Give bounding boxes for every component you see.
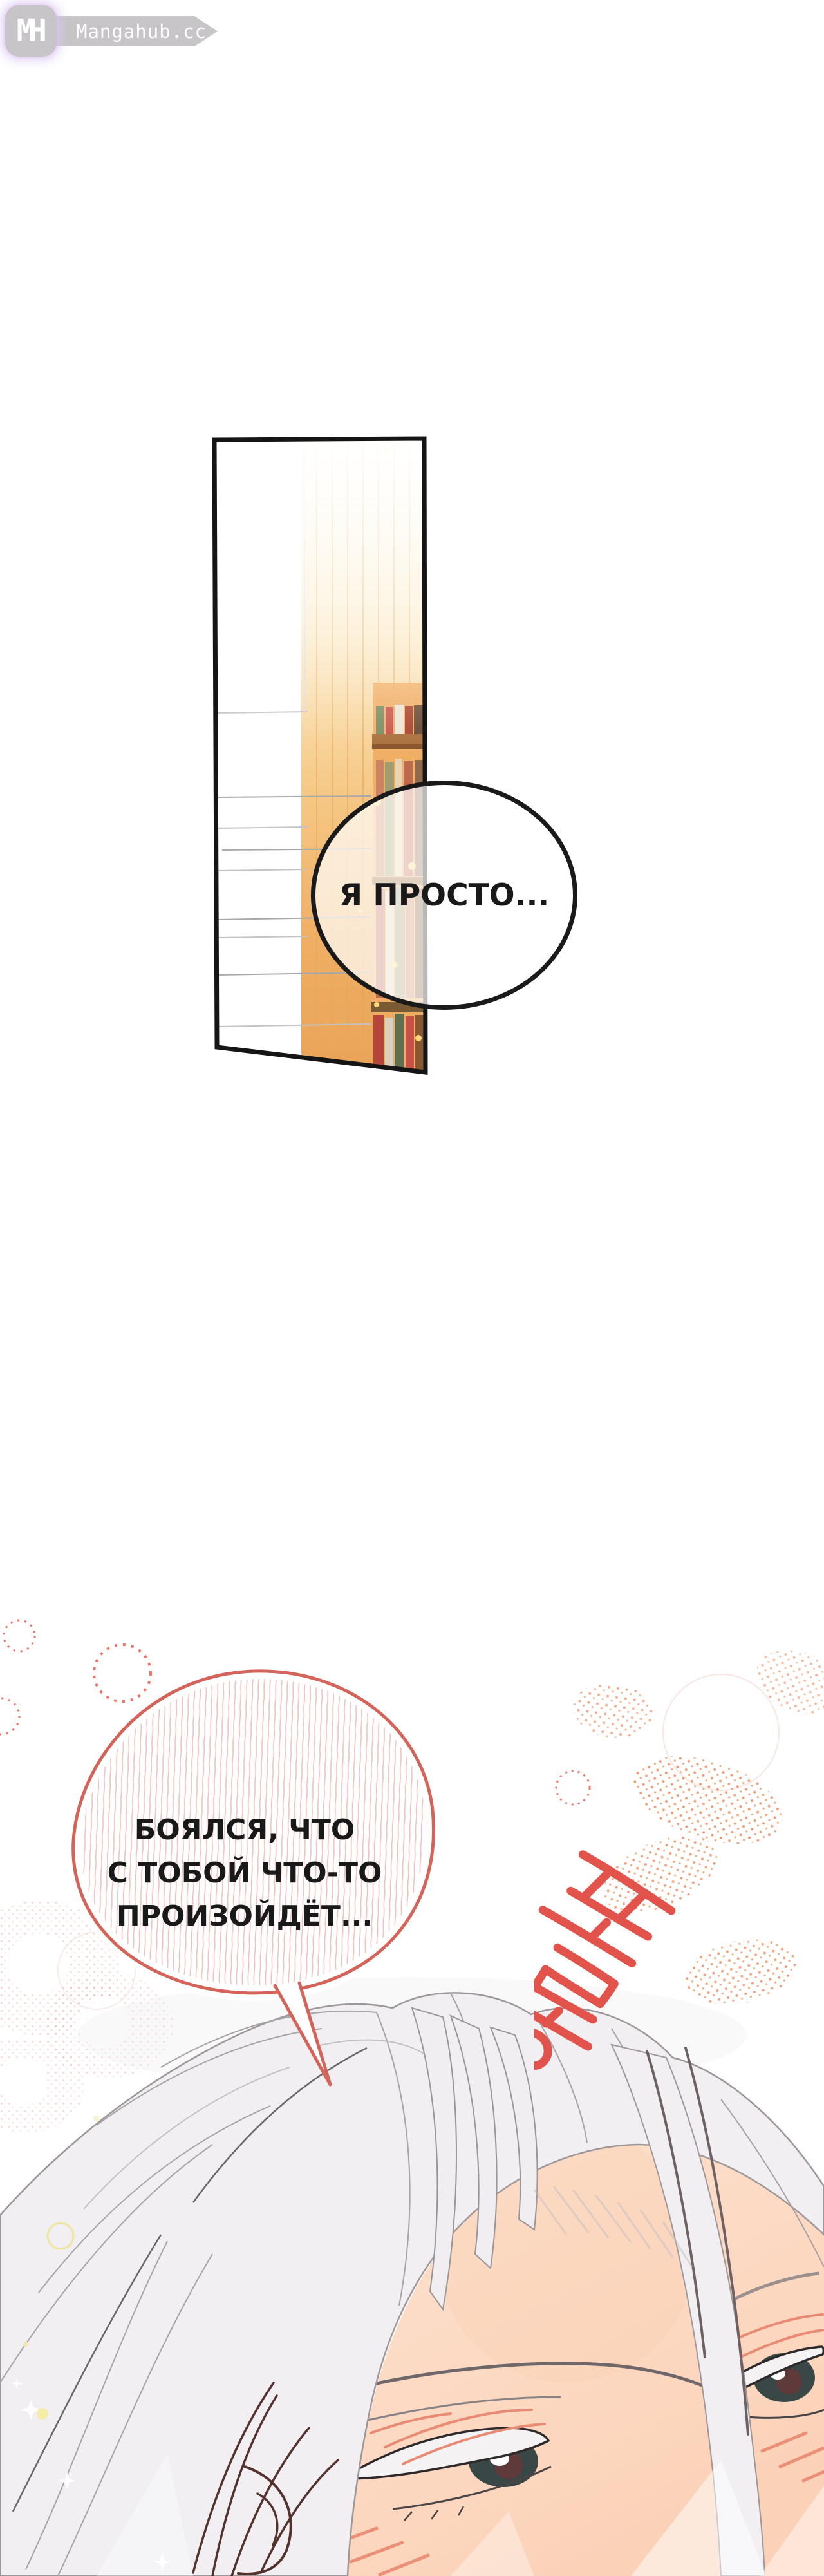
page-artwork [0, 0, 824, 2576]
watermark-mh-icon: MH [5, 5, 57, 57]
manga-page: { "page": {"width": 1280, "height": 4000… [0, 0, 824, 2576]
watermark-badge-text: MH [17, 13, 41, 49]
speech-bubble-1: Я ПРОСТО... [311, 781, 577, 1010]
speech-2-line-2: С ТОБОЙ ЧТО-ТО [84, 1851, 406, 1895]
bubble-tail [275, 1983, 330, 2085]
speech-2-text: БОЯЛСЯ, ЧТО С ТОБОЙ ЧТО-ТО ПРОИЗОЙДЁТ... [84, 1808, 406, 1938]
site-watermark: Mangahub.cc MH [0, 0, 232, 71]
speech-2-line-3: ПРОИЗОЙДЁТ... [84, 1895, 406, 1938]
speech-1-text: Я ПРОСТО... [339, 878, 549, 913]
watermark-banner: Mangahub.cc [51, 16, 218, 46]
watermark-site-text: Mangahub.cc [76, 21, 207, 43]
sfx-porong [534, 1816, 805, 2087]
character-art [0, 0, 824, 2576]
speech-2-line-1: БОЯЛСЯ, ЧТО [84, 1808, 406, 1851]
